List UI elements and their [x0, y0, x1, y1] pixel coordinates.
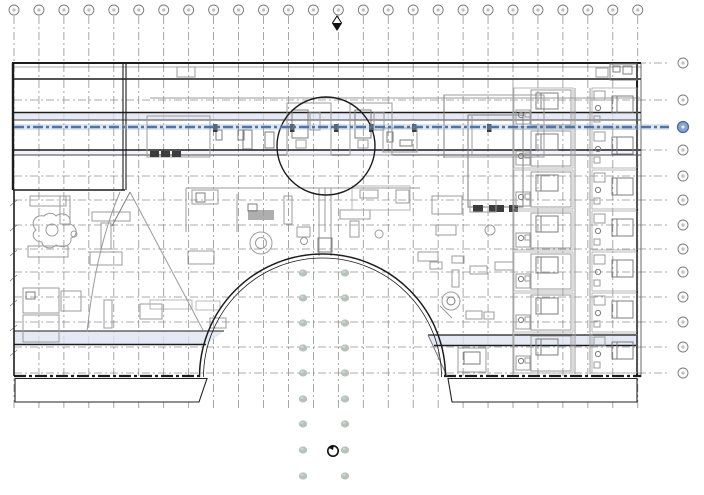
dot-symbol: [299, 472, 307, 479]
dot-symbol: [341, 446, 349, 453]
bottom-marker[interactable]: [328, 445, 338, 456]
dot-symbol: [341, 472, 349, 479]
drawing-area[interactable]: Architectural floor plan view (CAD) with…: [0, 0, 704, 495]
north-wing-rooms: [147, 64, 637, 212]
top-marker[interactable]: [333, 16, 342, 30]
dot-symbol: [341, 369, 349, 376]
dot-symbol: [341, 294, 349, 301]
dot-symbol: [299, 420, 307, 427]
dot-symbol: [299, 269, 307, 276]
highlight-bands: [14, 113, 641, 346]
dot-symbol: [299, 446, 307, 453]
dot-symbol: [341, 395, 349, 402]
dot-symbol: [341, 319, 349, 326]
dot-symbol: [341, 344, 349, 351]
guest-room-strip-east: [592, 88, 637, 373]
grid-rows: [14, 58, 688, 378]
parapet-strips: [15, 379, 637, 403]
dot-symbol: [299, 344, 307, 351]
dot-symbol: [299, 319, 307, 326]
dot-symbol-columns: [299, 269, 349, 479]
dot-symbol: [299, 294, 307, 301]
dot-symbol: [299, 395, 307, 402]
floor-plan-canvas[interactable]: [0, 0, 704, 495]
dot-symbol: [341, 420, 349, 427]
dot-symbol: [341, 269, 349, 276]
atrium-arc: [200, 254, 446, 377]
open-plan-furniture: [23, 186, 513, 376]
selected-grid-line[interactable]: [14, 122, 689, 133]
dot-symbol: [299, 369, 307, 376]
